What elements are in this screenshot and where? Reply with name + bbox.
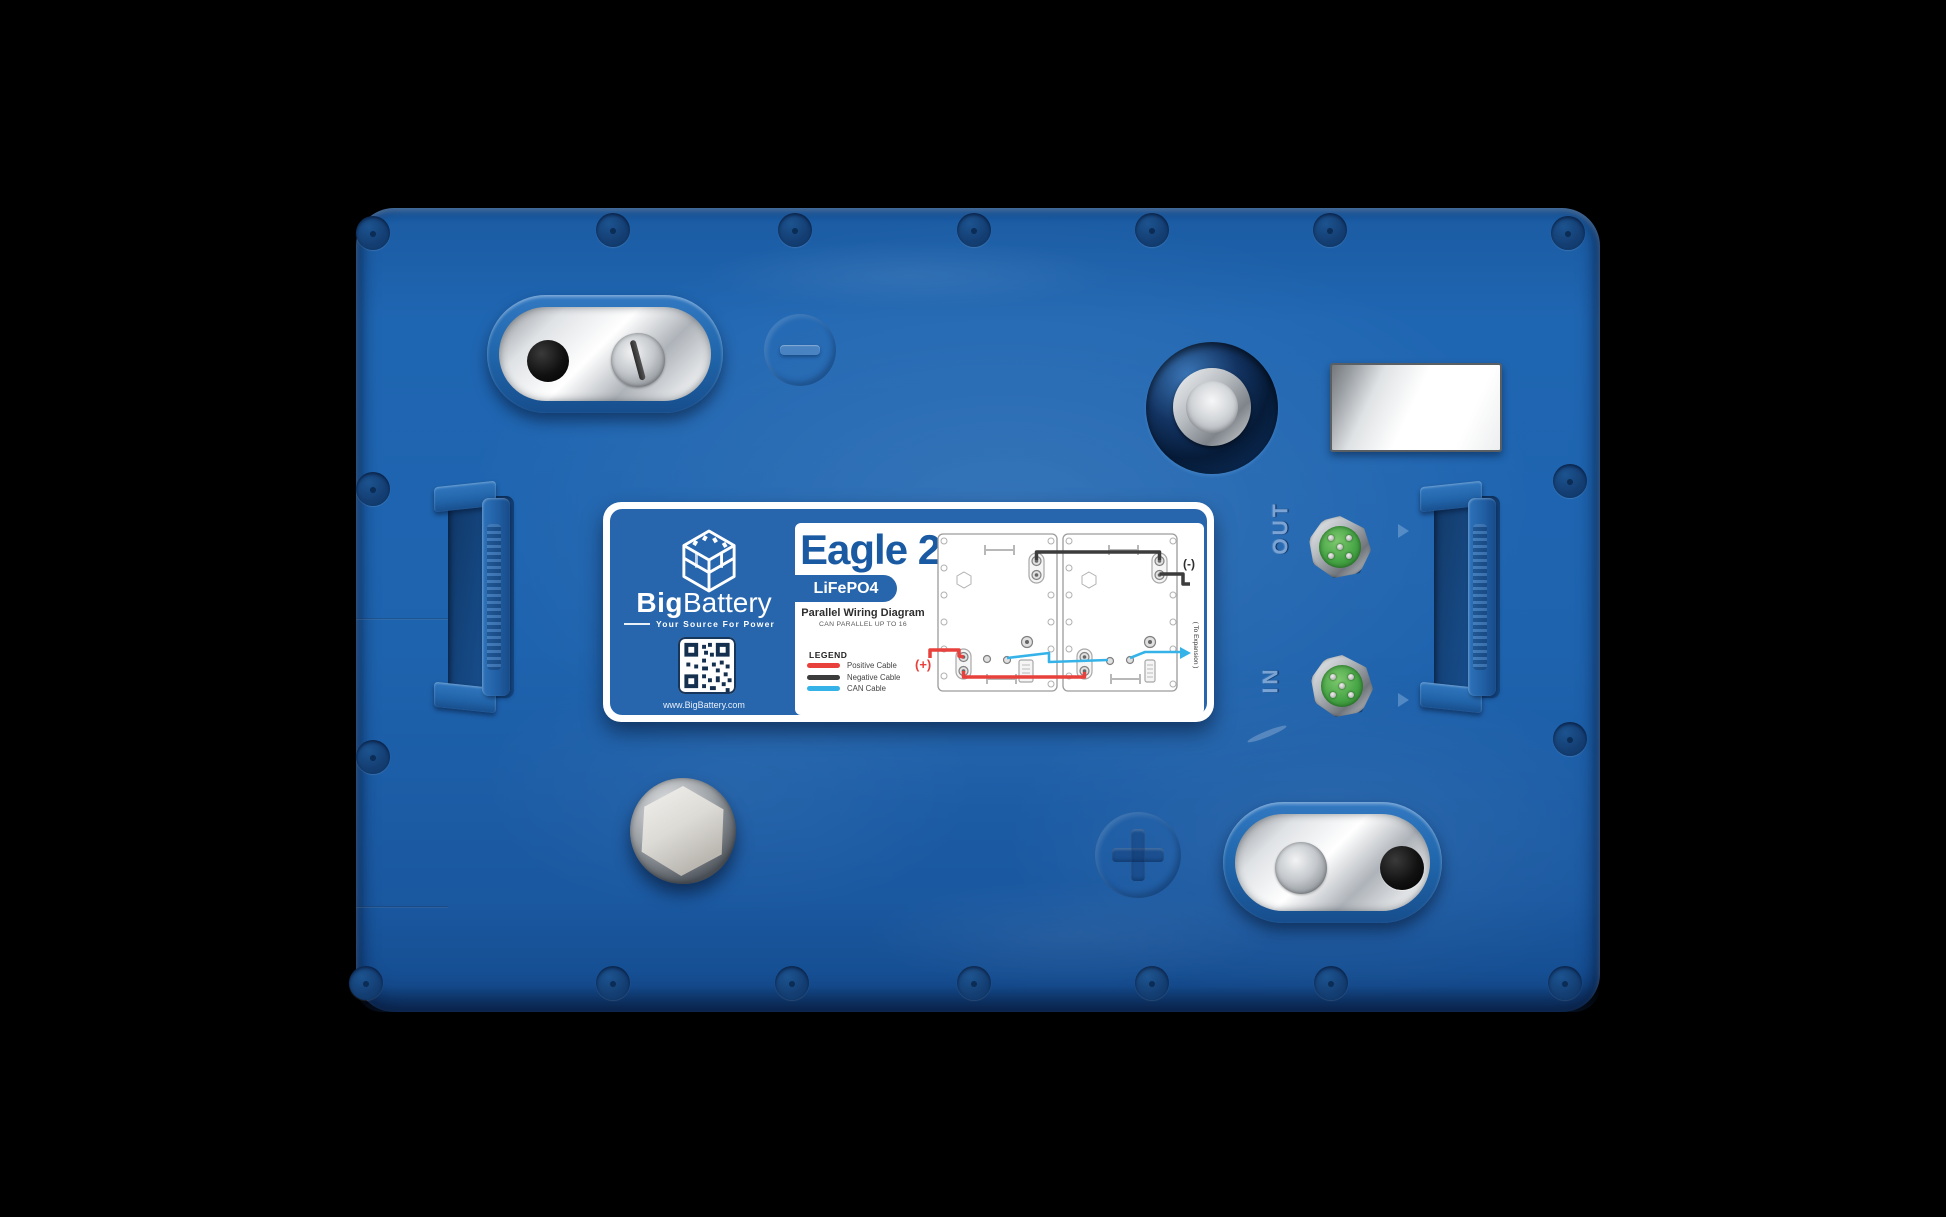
negative-marker: (-) [1183, 557, 1195, 571]
screw-boss [596, 213, 630, 247]
mold-seam [356, 906, 448, 908]
screw-boss [1135, 213, 1169, 247]
plus-icon [1131, 829, 1145, 881]
screw-boss [775, 966, 809, 1000]
molded-minus-mark [764, 314, 836, 386]
power-button-well [1146, 342, 1278, 474]
screw-boss [1313, 213, 1347, 247]
terminal-hole [1380, 846, 1424, 890]
can-cable-swatch [807, 686, 840, 691]
screw-boss [596, 966, 630, 1000]
connector-pin [1346, 553, 1352, 559]
power-button-ring [1173, 368, 1251, 446]
chrome-nameplate [1330, 363, 1502, 452]
connector-face [1321, 665, 1363, 707]
terminal-bolt [1275, 842, 1327, 894]
connector-pin [1330, 674, 1336, 680]
legend-label: CAN Cable [847, 684, 886, 693]
connector-pin [1348, 674, 1354, 680]
screw-boss [778, 213, 812, 247]
screw-boss [957, 966, 991, 1000]
molded-plus-mark [1095, 812, 1181, 898]
screw-boss [957, 213, 991, 247]
legend-row-positive: Positive Cable [807, 661, 897, 670]
handle-grip[interactable] [1468, 498, 1496, 696]
hex-bolt-head [638, 786, 728, 876]
connector-pin [1328, 553, 1334, 559]
in-port-label: IN [1260, 667, 1284, 694]
product-label: BigBattery Your Source For Power [603, 502, 1214, 722]
screw-boss [1548, 966, 1582, 1000]
connector-pin [1330, 692, 1336, 698]
qr-code [678, 637, 736, 694]
right-handle[interactable] [1420, 484, 1502, 710]
tagline-rule [624, 623, 650, 625]
molded-arrow [1398, 693, 1409, 707]
connector-face [1319, 526, 1361, 568]
power-button[interactable] [1186, 381, 1238, 433]
vent-bolt [630, 778, 736, 884]
metal-plate [499, 307, 711, 401]
negative-cable-swatch [807, 675, 840, 680]
out-port-label: OUT [1270, 501, 1294, 554]
terminal-hole [527, 340, 569, 382]
brand-regular: Battery [683, 587, 772, 618]
screw-boss [1314, 966, 1348, 1000]
connector-pin [1337, 544, 1343, 550]
connector-pin [1348, 692, 1354, 698]
product-photo-stage: OUT IN [0, 0, 1946, 1217]
screw-boss [356, 472, 390, 506]
screw-boss [1553, 722, 1587, 756]
connector-pin [1346, 535, 1352, 541]
tagline-row: Your Source For Power [624, 619, 784, 629]
legend-row-can: CAN Cable [807, 684, 886, 693]
terminal-plate-negative [487, 295, 723, 413]
qr-pattern [678, 637, 736, 694]
screw-boss [1135, 966, 1169, 1000]
terminal-screw [611, 333, 665, 387]
terminal-plate-positive [1223, 802, 1442, 923]
screw-boss [1553, 464, 1587, 498]
screw-boss [349, 966, 383, 1000]
legend-label: Negative Cable [847, 673, 900, 682]
left-handle[interactable] [434, 484, 516, 710]
connector-pin [1328, 535, 1334, 541]
molded-arrow [1398, 524, 1409, 538]
connector-pin [1339, 683, 1345, 689]
screw-boss [1551, 216, 1585, 250]
minus-icon [780, 345, 820, 355]
brand-name: BigBattery [620, 587, 788, 619]
legend-row-negative: Negative Cable [807, 673, 900, 682]
screw-boss [356, 740, 390, 774]
bigbattery-cube-logo-icon [680, 529, 738, 593]
positive-marker: (+) [915, 657, 931, 672]
handle-grip[interactable] [482, 498, 510, 696]
legend-label: Positive Cable [847, 661, 897, 670]
positive-cable-swatch [807, 663, 840, 668]
brand-bold: Big [636, 587, 683, 618]
expansion-note: ( To Expansion ) [1192, 622, 1199, 669]
parallel-wiring-diagram: (+) (-) ( To Expansion ) [902, 527, 1202, 697]
legend-title: LEGEND [809, 650, 847, 660]
screw-boss [356, 216, 390, 250]
chemistry-badge: LiFePO4 [795, 575, 897, 602]
website-url: www.BigBattery.com [620, 700, 788, 710]
screw-slot [630, 339, 647, 380]
can-arrowhead [1180, 647, 1191, 659]
brand-tagline: Your Source For Power [656, 619, 775, 629]
metal-plate [1235, 814, 1430, 911]
label-blue-panel: BigBattery Your Source For Power [610, 509, 1207, 715]
